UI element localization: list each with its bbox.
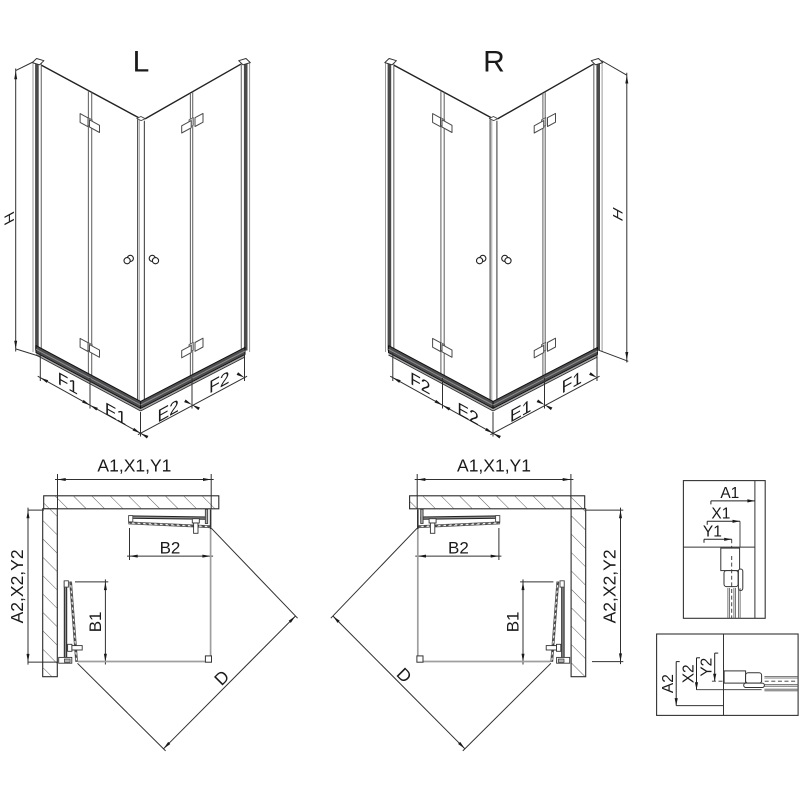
svg-text:L: L (133, 46, 150, 79)
svg-text:A1,X1,Y1: A1,X1,Y1 (97, 456, 171, 476)
svg-text:Y1: Y1 (703, 524, 722, 541)
svg-text:A2,X2,Y2: A2,X2,Y2 (7, 549, 27, 623)
svg-text:A1: A1 (720, 485, 739, 502)
svg-text:A2,X2,Y2: A2,X2,Y2 (600, 549, 620, 623)
svg-text:A1,X1,Y1: A1,X1,Y1 (457, 456, 531, 476)
svg-text:Y2: Y2 (699, 658, 716, 677)
svg-text:B2: B2 (448, 539, 469, 558)
svg-text:X2: X2 (681, 664, 698, 683)
svg-text:R: R (483, 46, 505, 79)
svg-text:B1: B1 (86, 612, 105, 633)
svg-text:A2: A2 (660, 674, 677, 693)
svg-text:X1: X1 (711, 506, 730, 523)
svg-text:B2: B2 (160, 539, 181, 558)
svg-text:B1: B1 (503, 612, 522, 633)
